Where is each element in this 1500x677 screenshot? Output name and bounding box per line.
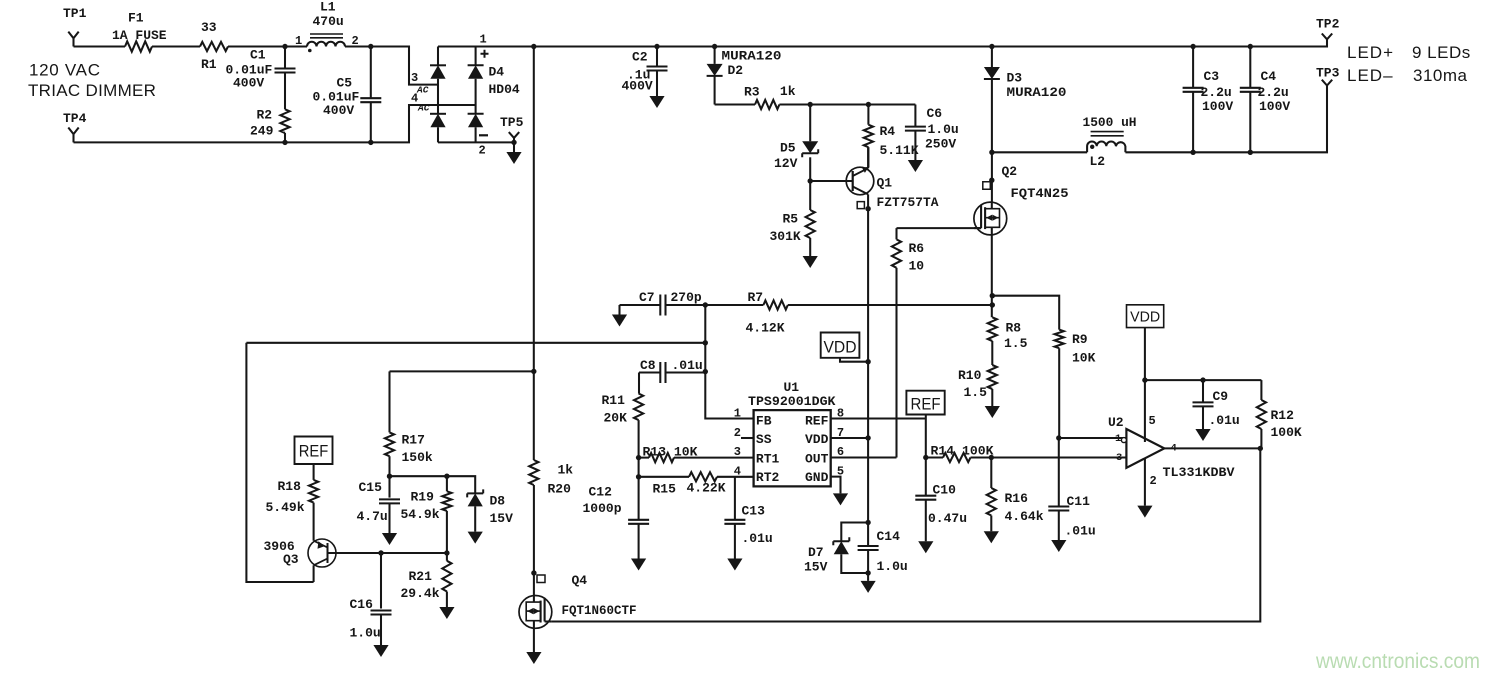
svg-text:C7: C7 bbox=[639, 290, 655, 305]
svg-text:400V: 400V bbox=[323, 103, 354, 118]
svg-text:D3: D3 bbox=[1007, 71, 1023, 86]
svg-text:.01u: .01u bbox=[742, 531, 773, 546]
svg-text:TPS92001DGK: TPS92001DGK bbox=[748, 394, 836, 409]
svg-text:1: 1 bbox=[295, 34, 302, 48]
svg-text:R5: R5 bbox=[783, 211, 799, 226]
svg-text:C3: C3 bbox=[1204, 69, 1220, 84]
svg-text:REF: REF bbox=[805, 414, 829, 429]
svg-text:FB: FB bbox=[756, 414, 772, 429]
svg-text:1: 1 bbox=[734, 407, 741, 421]
svg-text:4.22K: 4.22K bbox=[687, 481, 726, 496]
svg-text:U1: U1 bbox=[784, 380, 800, 395]
svg-text:www.cntronics.com: www.cntronics.com bbox=[1315, 650, 1480, 673]
svg-text:Q2: Q2 bbox=[1002, 164, 1018, 179]
svg-text:2: 2 bbox=[1150, 474, 1157, 488]
svg-text:AC: AC bbox=[417, 103, 430, 114]
svg-text:400V: 400V bbox=[622, 78, 653, 93]
svg-text:LED+: LED+ bbox=[1347, 43, 1394, 62]
svg-text:R12: R12 bbox=[1271, 408, 1295, 423]
svg-text:33: 33 bbox=[201, 20, 217, 35]
svg-text:RT1: RT1 bbox=[756, 452, 780, 467]
svg-text:C8: C8 bbox=[640, 358, 656, 373]
svg-text:FQT1N60CTF: FQT1N60CTF bbox=[562, 603, 637, 618]
svg-text:C9: C9 bbox=[1213, 389, 1229, 404]
svg-text:C10: C10 bbox=[933, 483, 957, 498]
svg-text:Q1: Q1 bbox=[877, 175, 893, 190]
svg-text:R6: R6 bbox=[909, 241, 925, 256]
svg-text:C11: C11 bbox=[1067, 494, 1091, 509]
svg-text:250V: 250V bbox=[925, 136, 956, 151]
svg-text:100K: 100K bbox=[1271, 425, 1302, 440]
svg-text:R15: R15 bbox=[653, 481, 677, 496]
svg-text:VDD: VDD bbox=[824, 337, 857, 356]
svg-text:3: 3 bbox=[734, 445, 741, 459]
svg-text:C5: C5 bbox=[337, 75, 353, 90]
svg-text:F1: F1 bbox=[128, 11, 144, 26]
svg-text:VDD: VDD bbox=[805, 432, 829, 447]
svg-text:5.49k: 5.49k bbox=[266, 500, 305, 515]
svg-text:R11: R11 bbox=[602, 393, 626, 408]
svg-text:LED–: LED– bbox=[1347, 66, 1394, 85]
svg-text:400V: 400V bbox=[233, 75, 264, 90]
svg-text:TP2: TP2 bbox=[1316, 17, 1340, 32]
svg-text:R10: R10 bbox=[958, 368, 982, 383]
svg-text:C15: C15 bbox=[359, 480, 383, 495]
svg-text:9 LEDs: 9 LEDs bbox=[1412, 43, 1471, 62]
svg-text:20K: 20K bbox=[604, 411, 628, 426]
svg-text:1500 uH: 1500 uH bbox=[1083, 115, 1137, 130]
svg-text:VDD: VDD bbox=[1130, 310, 1160, 326]
svg-text:D7: D7 bbox=[808, 545, 824, 560]
svg-text:R14 100K: R14 100K bbox=[931, 444, 994, 459]
svg-text:Q3: Q3 bbox=[283, 552, 299, 567]
svg-text:REF: REF bbox=[299, 442, 329, 461]
svg-text:R20: R20 bbox=[548, 482, 572, 497]
svg-text:310ma: 310ma bbox=[1413, 66, 1468, 85]
svg-text:0.47u: 0.47u bbox=[928, 511, 967, 526]
svg-text:3: 3 bbox=[1116, 452, 1122, 464]
svg-text:C16: C16 bbox=[350, 597, 374, 612]
svg-text:R18: R18 bbox=[278, 479, 302, 494]
svg-text:TP3: TP3 bbox=[1316, 65, 1340, 80]
svg-text:1: 1 bbox=[1115, 433, 1121, 445]
svg-text:D2: D2 bbox=[728, 63, 744, 78]
svg-text:2: 2 bbox=[479, 144, 486, 158]
svg-text:150k: 150k bbox=[402, 450, 433, 465]
svg-text:1000p: 1000p bbox=[583, 501, 622, 516]
svg-text:U2: U2 bbox=[1108, 415, 1124, 430]
svg-text:.01u: .01u bbox=[1065, 524, 1096, 539]
svg-text:SS: SS bbox=[756, 432, 772, 447]
svg-text:R13 10K: R13 10K bbox=[643, 444, 698, 459]
svg-text:1.0u: 1.0u bbox=[350, 625, 381, 640]
svg-text:R9: R9 bbox=[1072, 332, 1088, 347]
svg-text:MURA120: MURA120 bbox=[722, 49, 782, 64]
svg-text:.01u: .01u bbox=[1209, 413, 1240, 428]
svg-text:C1: C1 bbox=[250, 48, 266, 63]
svg-text:1.5: 1.5 bbox=[964, 385, 988, 400]
svg-text:100V: 100V bbox=[1202, 99, 1233, 114]
svg-text:C13: C13 bbox=[742, 503, 766, 518]
svg-text:301K: 301K bbox=[770, 229, 801, 244]
svg-text:100V: 100V bbox=[1259, 99, 1290, 114]
svg-text:MURA120: MURA120 bbox=[1007, 85, 1067, 100]
svg-text:R4: R4 bbox=[880, 124, 896, 139]
svg-text:D8: D8 bbox=[490, 493, 506, 508]
svg-text:R3: R3 bbox=[744, 85, 760, 100]
svg-text:15V: 15V bbox=[490, 511, 514, 526]
svg-text:R8: R8 bbox=[1006, 321, 1022, 336]
svg-text:R21: R21 bbox=[409, 569, 433, 584]
svg-text:C4: C4 bbox=[1261, 69, 1277, 84]
svg-text:4.7u: 4.7u bbox=[357, 509, 388, 524]
svg-text:C14: C14 bbox=[877, 529, 901, 544]
svg-text:RT2: RT2 bbox=[756, 470, 780, 485]
svg-text:FZT757TA: FZT757TA bbox=[877, 195, 939, 210]
svg-text:2.2u: 2.2u bbox=[1201, 85, 1232, 100]
svg-text:54.9k: 54.9k bbox=[401, 507, 440, 522]
svg-text:2.2u: 2.2u bbox=[1258, 85, 1289, 100]
svg-text:Q4: Q4 bbox=[572, 573, 588, 588]
svg-text:TP4: TP4 bbox=[63, 111, 87, 126]
svg-text:2: 2 bbox=[734, 426, 741, 440]
svg-text:R2: R2 bbox=[257, 107, 273, 122]
svg-text:R17: R17 bbox=[402, 433, 425, 448]
svg-text:TP5: TP5 bbox=[500, 115, 524, 130]
svg-text:D4: D4 bbox=[489, 65, 505, 80]
svg-text:HD04: HD04 bbox=[489, 82, 520, 97]
svg-text:FQT4N25: FQT4N25 bbox=[1011, 186, 1069, 201]
svg-text:4.64k: 4.64k bbox=[1005, 509, 1044, 524]
svg-text:R7: R7 bbox=[748, 290, 764, 305]
svg-text:29.4k: 29.4k bbox=[401, 586, 440, 601]
svg-text:15V: 15V bbox=[804, 560, 828, 575]
svg-text:1k: 1k bbox=[558, 462, 574, 477]
svg-text:1k: 1k bbox=[780, 84, 796, 99]
svg-text:1: 1 bbox=[480, 33, 487, 47]
svg-text:270p: 270p bbox=[671, 290, 702, 305]
svg-text:TL331KDBV: TL331KDBV bbox=[1163, 465, 1235, 480]
svg-text:1.0u: 1.0u bbox=[877, 559, 908, 574]
svg-text:5.11K: 5.11K bbox=[880, 143, 919, 158]
svg-text:REF: REF bbox=[911, 394, 941, 413]
svg-text:C2: C2 bbox=[632, 50, 648, 65]
svg-text:10: 10 bbox=[909, 259, 925, 274]
svg-text:L1: L1 bbox=[320, 0, 336, 15]
svg-text:.01u: .01u bbox=[672, 358, 703, 373]
svg-text:AC: AC bbox=[416, 85, 429, 96]
svg-text:3: 3 bbox=[411, 71, 418, 85]
svg-text:470u: 470u bbox=[313, 14, 344, 29]
svg-text:R16: R16 bbox=[1005, 491, 1029, 506]
svg-text:D5: D5 bbox=[780, 141, 796, 156]
svg-text:5: 5 bbox=[1149, 414, 1156, 428]
svg-text:L2: L2 bbox=[1090, 154, 1106, 169]
svg-text:C6: C6 bbox=[927, 106, 943, 121]
svg-text:C12: C12 bbox=[589, 485, 613, 500]
svg-text:4: 4 bbox=[734, 465, 741, 479]
svg-text:OUT: OUT bbox=[805, 452, 829, 467]
svg-text:1A FUSE: 1A FUSE bbox=[112, 28, 167, 43]
svg-text:12V: 12V bbox=[774, 156, 798, 171]
svg-text:TP1: TP1 bbox=[63, 6, 87, 21]
svg-text:1.0u: 1.0u bbox=[928, 122, 959, 137]
svg-text:R19: R19 bbox=[411, 489, 435, 504]
svg-text:10K: 10K bbox=[1072, 350, 1096, 365]
svg-text:R1: R1 bbox=[201, 57, 217, 72]
svg-text:2: 2 bbox=[352, 34, 359, 48]
svg-text:GND: GND bbox=[805, 470, 829, 485]
svg-text:TRIAC DIMMER: TRIAC DIMMER bbox=[28, 81, 156, 100]
svg-text:120 VAC: 120 VAC bbox=[29, 61, 101, 80]
svg-text:249: 249 bbox=[250, 124, 274, 139]
svg-text:4.12K: 4.12K bbox=[746, 321, 785, 336]
svg-text:1.5: 1.5 bbox=[1004, 336, 1028, 351]
